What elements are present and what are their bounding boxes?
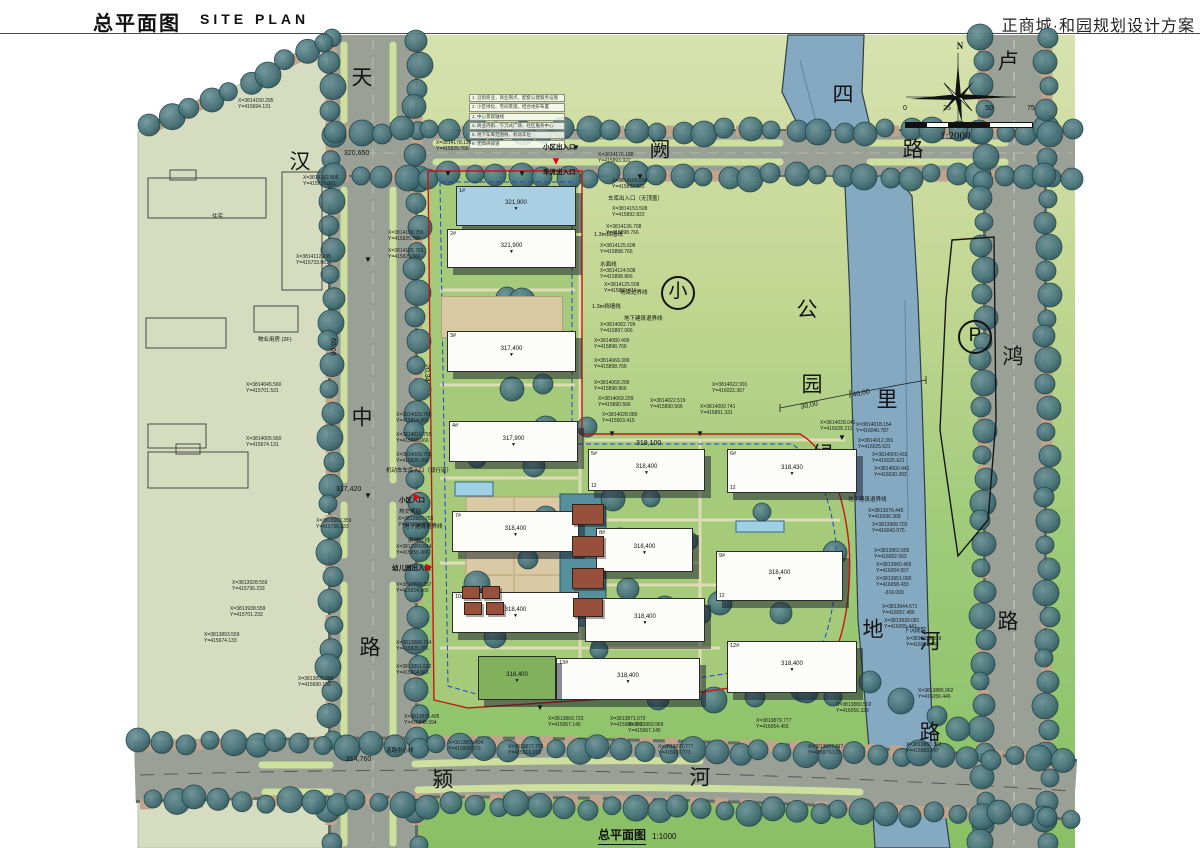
road-name-label: 汉 <box>290 152 311 173</box>
feature-label: 小区入口 <box>399 497 425 504</box>
drawing-caption: 总平面图1:1000 <box>598 826 676 845</box>
coordinate-label: X=3813877.777Y=415937.773 <box>658 744 693 757</box>
entrance-marker: ▼ <box>572 144 580 152</box>
feature-label: 车流出入口 <box>543 169 576 176</box>
coordinate-label: X=3813939.081Y=416055.441 <box>884 618 919 631</box>
coordinate-label: X=3813877.777Y=415973.173 <box>808 744 843 757</box>
coordinate-label: X=3813939.337Y=415814.966 <box>396 582 431 595</box>
dimension-label: 20,34 <box>423 364 430 382</box>
building-kg: 318,400▼ <box>478 656 556 700</box>
entrance-marker: ▼ <box>838 434 846 442</box>
building-9: 9#318,400▼12 <box>716 551 843 601</box>
building-2: 2#321,900▼ <box>447 229 576 268</box>
coordinate-label: X=3813965.755Y=415854.066 <box>398 516 433 529</box>
coordinate-label: X=3814069.299Y=415890.566 <box>598 396 633 409</box>
coordinate-label: X=3814162.895Y=415716.081 <box>303 175 338 188</box>
river-name-label: 里 <box>877 390 898 411</box>
coordinate-label: X=3813892.559Y=415690.133 <box>298 676 333 689</box>
coordinate-label: X=3813938.839Y=416054.445 <box>906 636 941 649</box>
pavilion <box>572 504 604 525</box>
building-12: 12#318,400▼ <box>727 641 857 693</box>
entrance-marker: ▼ <box>608 430 616 438</box>
road-name-label: 路 <box>903 140 924 161</box>
coordinate-label: X=3813875.495Y=415848.594 <box>404 714 439 727</box>
coordinate-label: X=3813963.359Y=415736.233 <box>316 518 351 531</box>
entrance-marker: ▼ <box>696 430 704 438</box>
coordinate-label: X=3814124.508Y=415898.866 <box>600 268 635 281</box>
building-5: 5#318,400▼12 <box>588 449 705 491</box>
coordinate-label: X=3814136.708Y=415898.766 <box>606 224 641 237</box>
entrance-marker: ▼ <box>518 170 526 178</box>
pavilion <box>464 602 482 615</box>
coordinate-label: X=3814080.499Y=415898.766 <box>594 338 629 351</box>
coordinate-label: X=3814082.799Y=415897.066 <box>600 322 635 335</box>
pavilion <box>486 602 504 615</box>
building-6: 6#318,430▼12 <box>727 449 857 493</box>
coordinate-label: X=3814125.755Y=415825.566 <box>388 248 423 261</box>
feature-label: 物业用房 (2F) <box>258 337 292 343</box>
building-1: 1#321,900▼ <box>456 186 576 226</box>
pavilion <box>482 586 500 599</box>
park-name-label: 地 <box>863 620 884 641</box>
building-4: 4#317,900▼ <box>449 421 578 462</box>
road-name-label: 鸿 <box>1003 347 1024 368</box>
coordinate-label: X=3813951.090Y=416058.433 <box>876 576 911 589</box>
coordinate-label: X=3813880.392Y=415983.147 <box>906 742 941 755</box>
coordinate-label: X=3814069.399Y=415898.766 <box>594 358 629 371</box>
coordinate-label: X=3814028.080Y=415903.415 <box>602 412 637 425</box>
dimension-label: 320,650 <box>344 150 369 157</box>
road-name-label: 路 <box>360 638 381 659</box>
coordinate-label: X=3814125.608Y=415898.766 <box>600 243 635 256</box>
river-name-label: 四 <box>833 85 854 106</box>
road-name-label: 阙 <box>650 140 671 161</box>
coordinate-label: X=3814012.391Y=416025.621 <box>858 438 893 451</box>
coordinate-label: X=3813976.445Y=416036.368 <box>868 508 903 521</box>
dimension-label: 40,00 <box>852 388 871 398</box>
coordinate-label: X=3814016.755Y=415815.066 <box>396 432 431 445</box>
coordinate-label: X=3814176.188Y=415893.922 <box>598 152 633 165</box>
coordinate-label: X=3813969.969Y=415967.145 <box>628 722 663 735</box>
entrance-marker: ▶ <box>426 563 433 572</box>
entrance-marker: ▼ <box>364 256 372 264</box>
building-13: 13#318,400▼ <box>556 658 700 700</box>
building-7: 7#318,400▼ <box>452 511 579 552</box>
coordinate-label: X=3814112.295Y=415733.081 <box>296 254 331 267</box>
coordinate-label: X=3814153.508Y=415892.822 <box>612 206 647 219</box>
entrance-marker: ▼ <box>551 157 562 168</box>
road-name-label: 中 <box>352 408 373 429</box>
road-name-label: 河 <box>690 768 711 789</box>
road-name-label: 路 <box>998 612 1019 633</box>
coordinate-label: X=3814150.295Y=415694.131 <box>238 98 273 111</box>
coordinate-label: X=3814000.441Y=416030.282 <box>874 466 909 479</box>
pavilion <box>572 568 604 589</box>
coordinate-label: X=3813944.571Y=416057.485 <box>882 604 917 617</box>
coordinate-label: X=3813960.644Y=415855.066 <box>396 544 431 557</box>
dimension-label: 60,00 <box>329 338 336 356</box>
entrance-marker: ▶ <box>414 493 421 502</box>
coordinate-label: X=3813889.714Y=415825.766 <box>396 640 431 653</box>
coordinate-label: X=3813989.703Y=416043.075 <box>872 522 907 535</box>
coordinate-label: X=3814125.508Y=415890.616 <box>604 282 639 295</box>
coordinate-label: X=3813879.777Y=416054.455 <box>756 718 791 731</box>
caption-scale: 1:1000 <box>652 832 676 841</box>
coordinate-label: X=3814020.755Y=415814.966 <box>396 412 431 425</box>
coordinate-label: X=3814022.519Y=415890.566 <box>650 398 685 411</box>
dimension-label: 317,420 <box>336 486 361 493</box>
feature-label: 住宅 <box>212 214 223 220</box>
entrance-marker: ▼ <box>444 170 452 178</box>
dimension-label: 30,00 <box>800 400 819 410</box>
entrance-marker: ▼ <box>364 492 372 500</box>
entrance-marker: ▼ <box>636 173 644 181</box>
coordinate-label: -316.000 <box>884 590 904 596</box>
feature-label: 车库出入口（无顶盖） <box>608 196 663 202</box>
building-11: 11#318,400▼ <box>585 598 705 642</box>
feature-label: 地下建筑退界线 <box>848 497 887 503</box>
coordinate-label: X=3813877.773Y=415913.973 <box>508 744 543 757</box>
coordinate-label: X=3813928.559Y=415736.233 <box>232 580 267 593</box>
dimension-label: 318,100 <box>636 440 661 447</box>
feature-label: 小区出入口 <box>543 144 576 151</box>
building-8: 8#318,400▼ <box>596 528 693 572</box>
coordinate-label: X=3814000.741Y=415891.331 <box>700 404 735 417</box>
coordinate-label: X=3814068.299Y=415898.866 <box>594 380 629 393</box>
park-name-label: 公 <box>797 300 818 321</box>
label-layer: 天汉中路阙路卢鸿路颍河路四里河公园绿地小P小区出入口车流出入口车库出入口（无顶盖… <box>0 0 1200 848</box>
coordinate-label: X=3814018.154Y=416040.787 <box>856 422 891 435</box>
pavilion <box>573 598 603 617</box>
caption-title: 总平面图 <box>598 826 646 845</box>
feature-label: 机动车车库入口（双行道） <box>386 468 452 474</box>
road-name-label: 天 <box>352 68 373 89</box>
road-name-label: 颍 <box>433 770 454 791</box>
feature-label: 1.3m挡墙线 <box>592 304 621 310</box>
feature-label: 热交换站 <box>399 509 421 515</box>
coordinate-label: X=3813962.655Y=416052.063 <box>874 548 909 561</box>
feature-label: 道路中心线 <box>386 748 414 754</box>
pavilion <box>572 536 604 557</box>
coordinate-label: X=3813891.522Y=415814.966 <box>396 664 431 677</box>
coordinate-label: X=3814000.433Y=416025.621 <box>872 452 907 465</box>
coordinate-label: X=3813886.962Y=416056.446 <box>918 688 953 701</box>
building-3: 3#317,400▼ <box>447 331 576 372</box>
entrance-marker: ▼ <box>536 704 544 712</box>
road-name-label: 卢 <box>998 52 1019 73</box>
coordinate-label: X=3813960.465Y=416054.557 <box>876 562 911 575</box>
coordinate-label: X=3813875.494Y=415900.573 <box>448 740 483 753</box>
coordinate-label: X=3814009.755Y=415825.066 <box>396 452 431 465</box>
parking-mark: P <box>958 320 992 354</box>
coordinate-label: X=3814136.755Y=415825.766 <box>388 230 423 243</box>
road-name-label: 路 <box>920 723 941 744</box>
park-name-label: 园 <box>802 375 823 396</box>
coordinate-label: X=3814005.560Y=415674.131 <box>246 436 281 449</box>
pavilion <box>462 586 480 599</box>
coordinate-label: X=3814045.560Y=415701.531 <box>246 382 281 395</box>
coordinate-label: X=3814178.128Y=415825.766 <box>436 140 471 153</box>
dimension-label: 314,760 <box>346 756 371 763</box>
coordinate-label: X=3813869.723Y=415967.145 <box>548 716 583 729</box>
coordinate-label: X=3813880.502Y=416056.329 <box>836 702 871 715</box>
site-plan-page: 总平面图 SITE PLAN 正商城·和园规划设计方案 <box>0 0 1200 848</box>
coordinate-label: X=3814028.041Y=416028.211 <box>820 420 855 433</box>
park-mark: 小 <box>661 276 695 310</box>
coordinate-label: X=3814022.991Y=416022.367 <box>712 382 747 395</box>
coordinate-label: X=3813938.559Y=415701.233 <box>230 606 265 619</box>
coordinate-label: X=3813893.559Y=415674.133 <box>204 632 239 645</box>
